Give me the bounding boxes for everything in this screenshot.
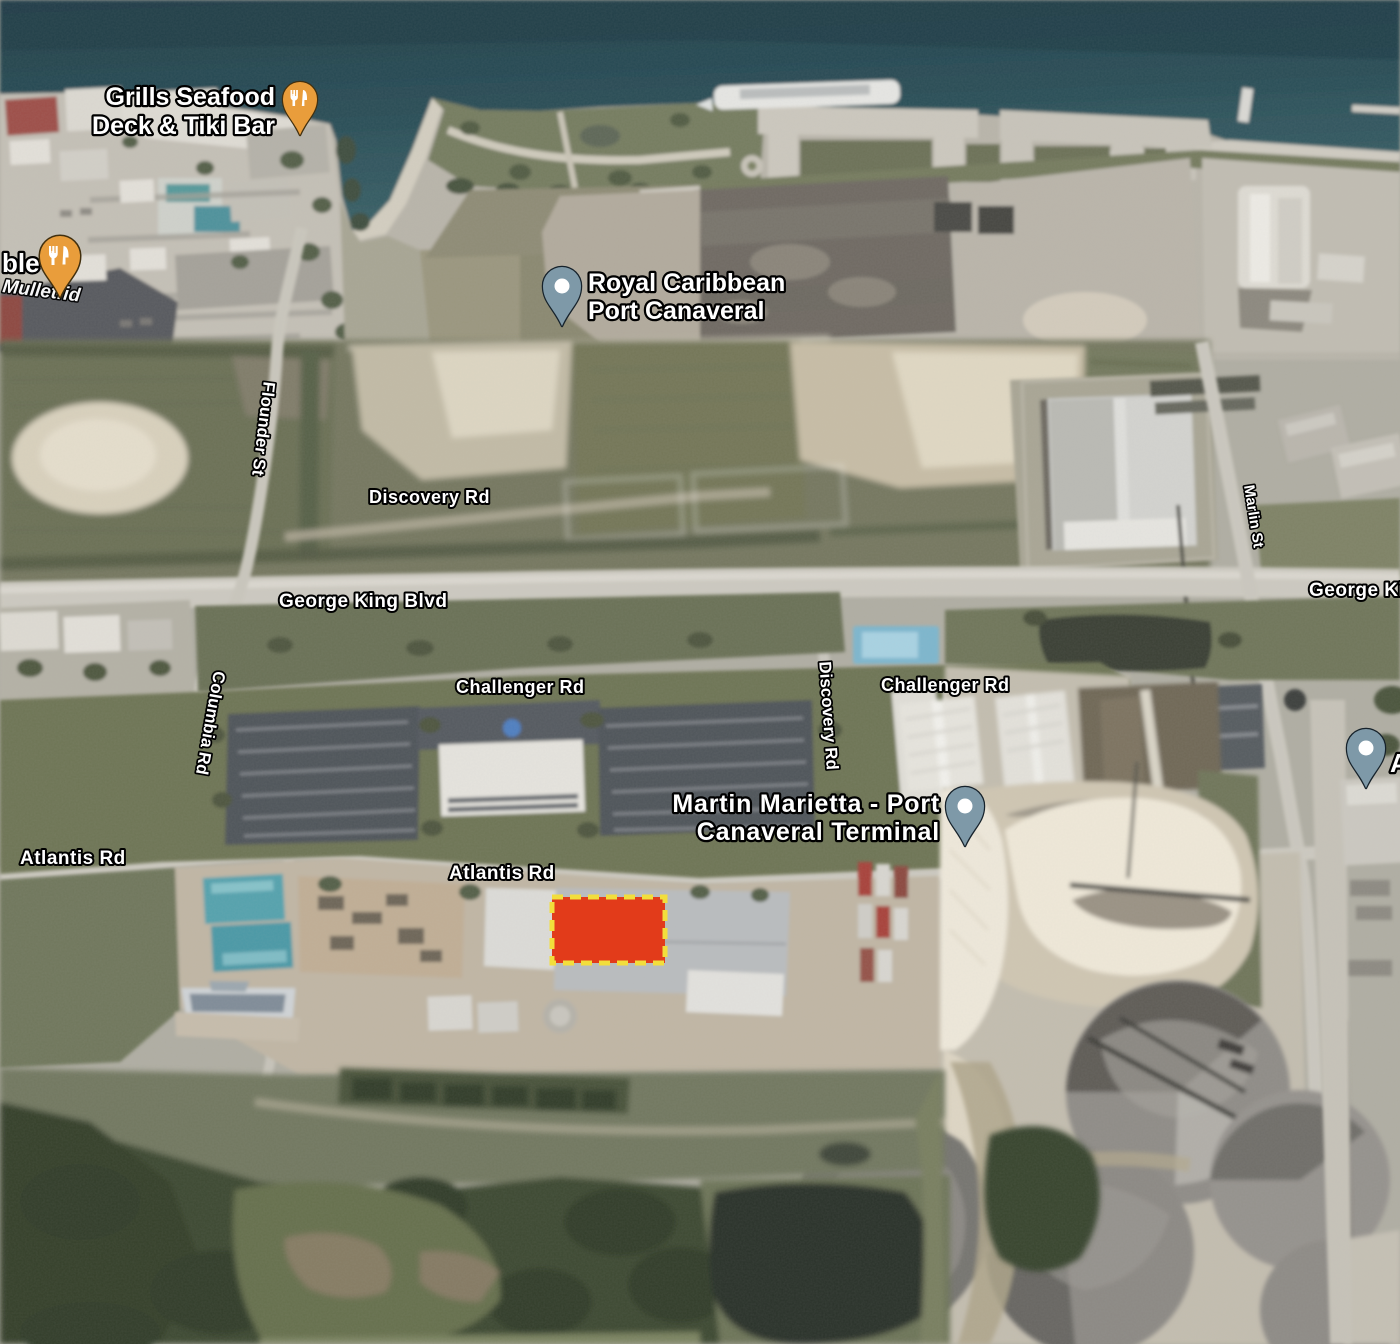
svg-text:George King Blvd: George King Blvd xyxy=(279,591,447,612)
svg-text:A: A xyxy=(1390,748,1400,778)
svg-text:Atlantis Rd: Atlantis Rd xyxy=(20,848,126,869)
svg-text:George Kin: George Kin xyxy=(1309,580,1400,601)
svg-text:Challenger Rd: Challenger Rd xyxy=(456,677,585,697)
svg-text:Canaveral Terminal: Canaveral Terminal xyxy=(697,818,940,846)
svg-text:Atlantis Rd: Atlantis Rd xyxy=(449,863,555,884)
svg-text:Martin Marietta - Port: Martin Marietta - Port xyxy=(672,790,940,818)
svg-text:Deck & Tiki Bar: Deck & Tiki Bar xyxy=(92,112,275,140)
svg-text:Challenger Rd: Challenger Rd xyxy=(881,675,1010,695)
svg-text:Port Canaveral: Port Canaveral xyxy=(588,297,764,325)
svg-text:Discovery Rd: Discovery Rd xyxy=(369,487,490,507)
svg-text:Grills Seafood: Grills Seafood xyxy=(106,83,275,111)
svg-text:ble: ble xyxy=(2,248,40,278)
svg-text:Royal Caribbean: Royal Caribbean xyxy=(588,269,785,297)
